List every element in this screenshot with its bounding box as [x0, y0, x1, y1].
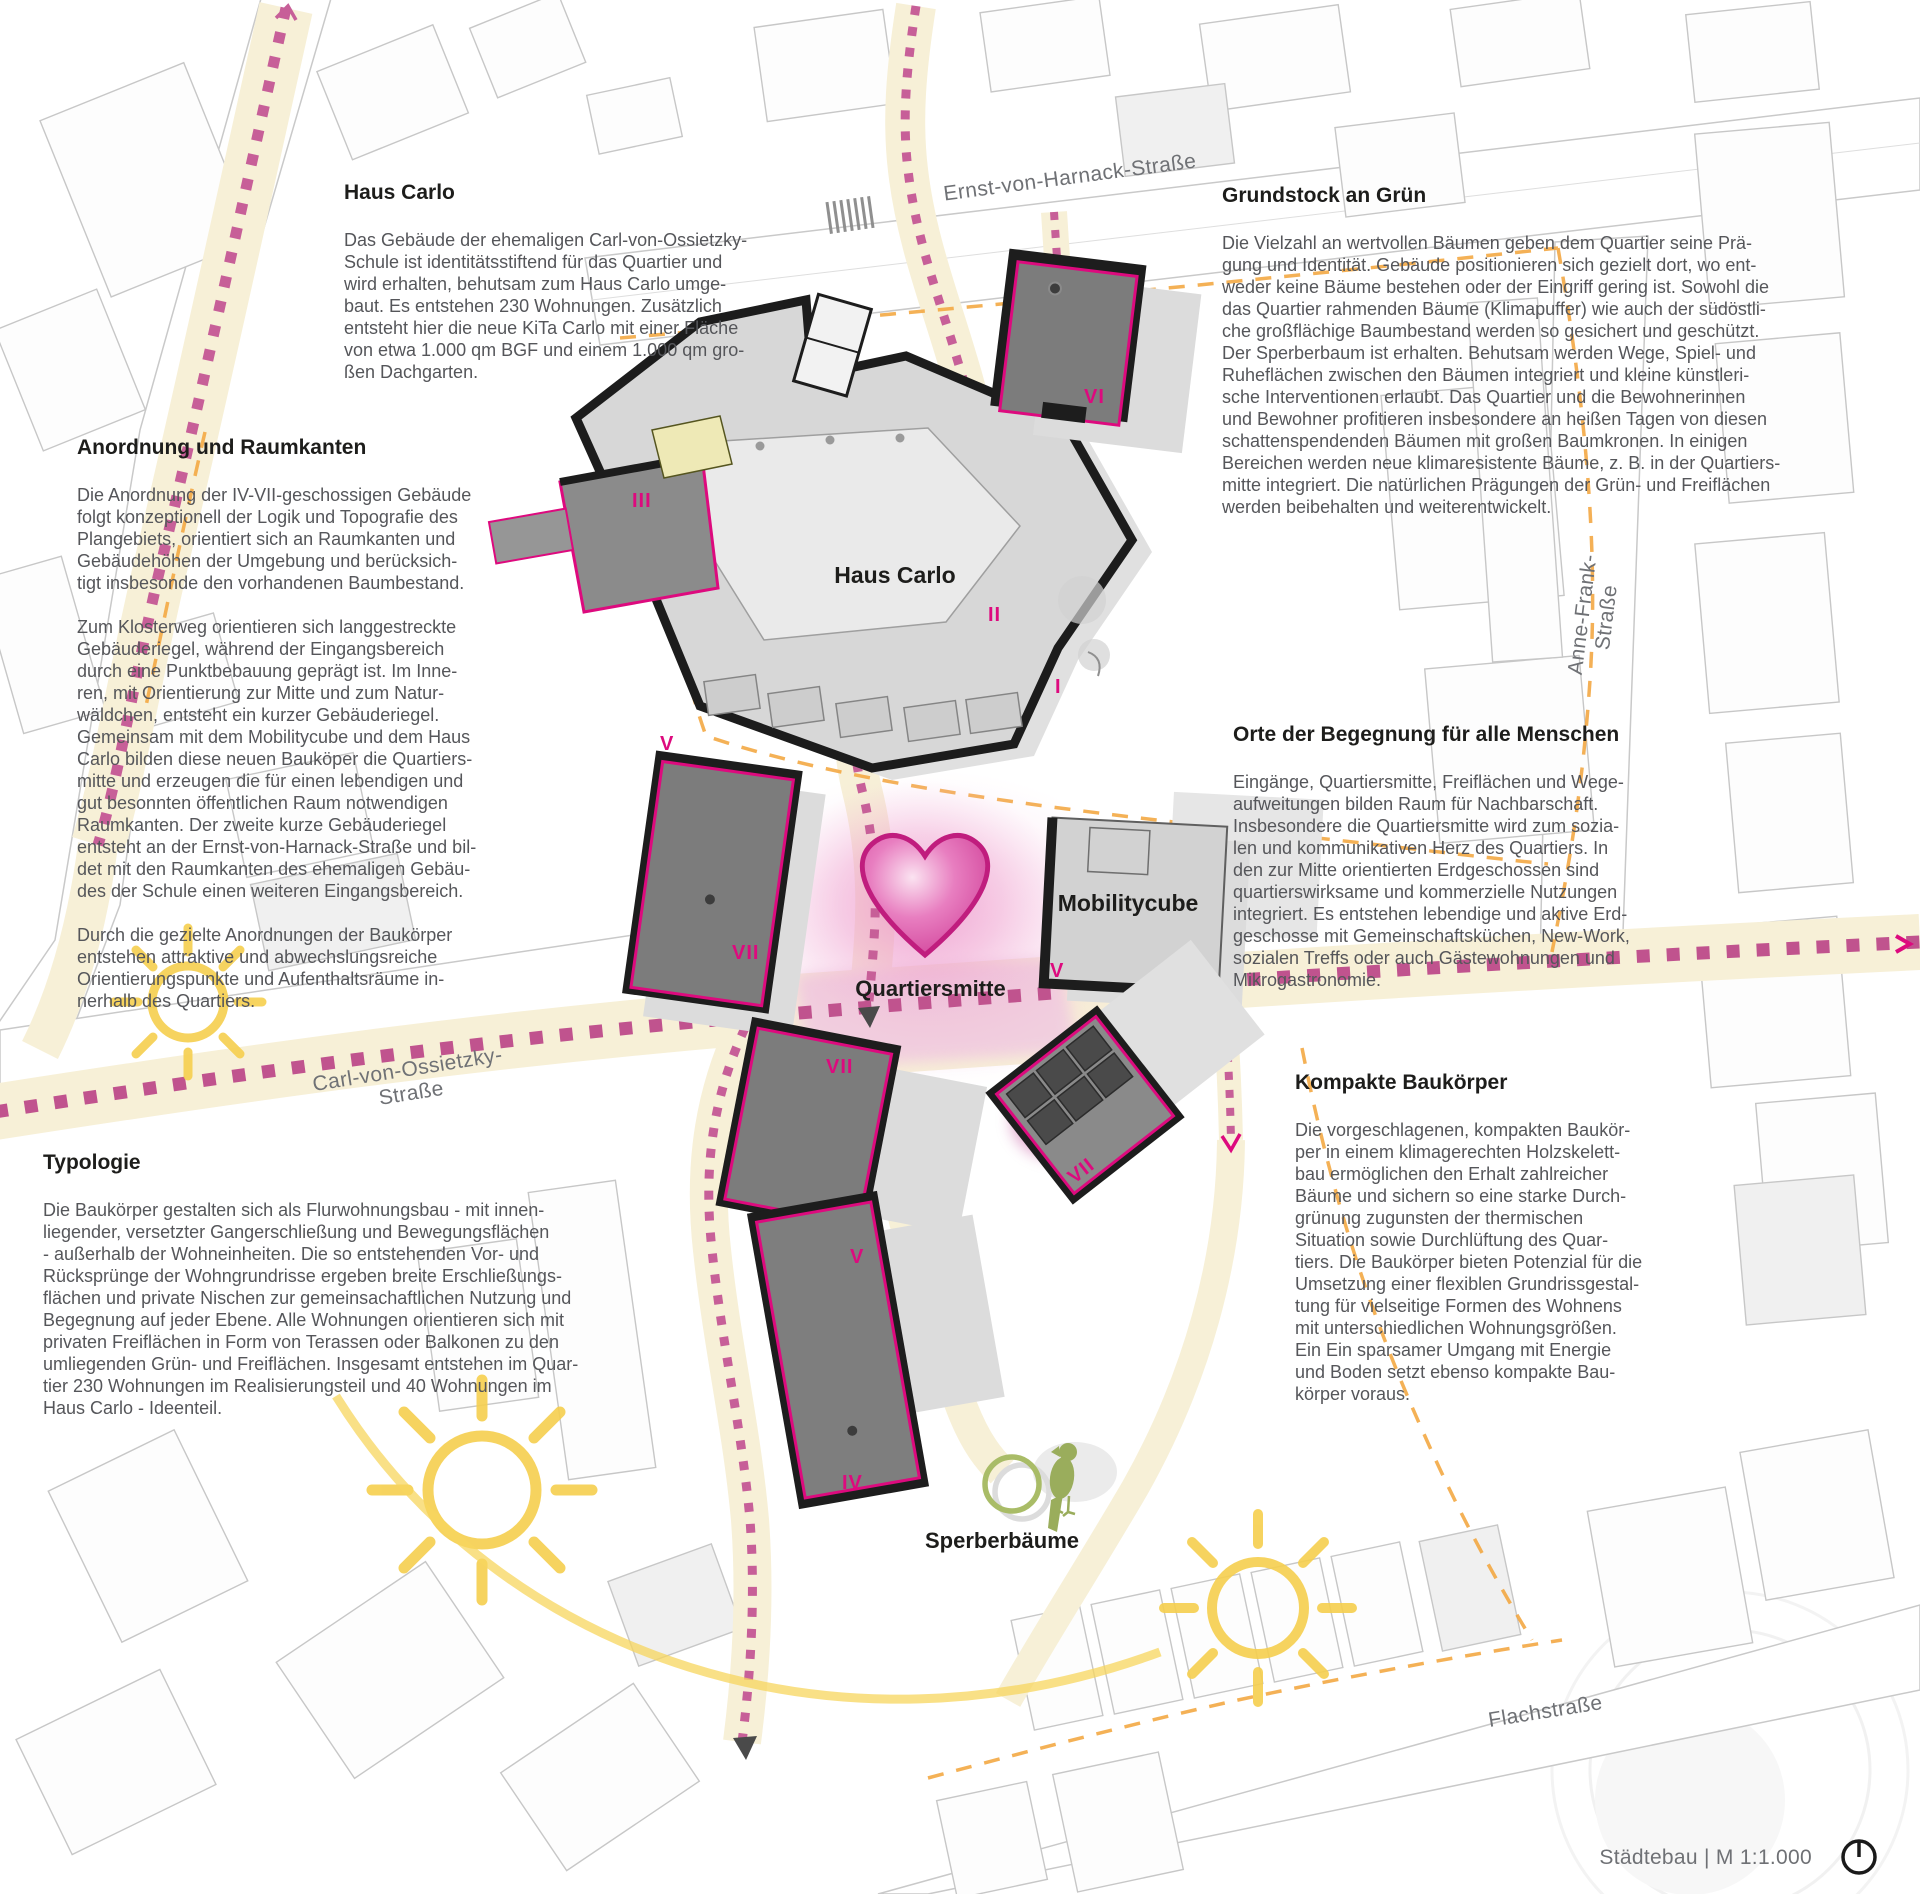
annotation-grundstock: Grundstock an Grün Die Vielzahl an wertv… — [1222, 161, 1842, 540]
label-mobilitycube: Mobilitycube — [1038, 890, 1218, 917]
scale-label: Städtebau | M 1:1.000 — [1556, 1846, 1812, 1870]
north-arrow-icon — [1843, 1841, 1875, 1873]
annotation-haus-carlo: Haus Carlo Das Gebäude der ehemaligen Ca… — [344, 158, 814, 405]
annotation-anordnung: Anordnung und Raumkanten Die Anordnung d… — [77, 413, 517, 1034]
annotation-body: Die vorgeschlagenen, kompakten Baukör- p… — [1295, 1119, 1695, 1405]
annotation-body: Die Vielzahl an wertvollen Bäumen geben … — [1222, 232, 1842, 518]
building-v-vii — [619, 751, 828, 1038]
annotation-body: Die Baukörper gestalten sich als Flurwoh… — [43, 1199, 663, 1419]
storey-numeral: I — [1055, 676, 1062, 699]
annotation-body: Eingänge, Quartiersmitte, Freiflächen un… — [1233, 771, 1693, 991]
storey-numeral: III — [632, 490, 652, 513]
annotation-body: Die Anordnung der IV-VII-geschossigen Ge… — [77, 484, 517, 1012]
storey-numeral: V — [660, 733, 674, 756]
annotation-kompakte: Kompakte Baukörper Die vorgeschlagenen, … — [1295, 1048, 1695, 1427]
storey-numeral: VII — [732, 942, 759, 965]
label-quartiersmitte: Quartiersmitte — [838, 976, 1023, 1002]
annotation-title: Grundstock an Grün — [1222, 183, 1842, 209]
label-sperberbaeume: Sperberbäume — [912, 1528, 1092, 1554]
storey-numeral: V — [850, 1246, 864, 1269]
annotation-body: Das Gebäude der ehemaligen Carl-von-Ossi… — [344, 229, 814, 383]
storey-numeral: IV — [842, 1472, 863, 1495]
storey-numeral: V — [1050, 960, 1064, 983]
annotation-title: Typologie — [43, 1150, 663, 1176]
label-haus-carlo: Haus Carlo — [820, 562, 970, 589]
urban-design-plan: Haus Carlo Das Gebäude der ehemaligen Ca… — [0, 0, 1920, 1894]
sperberbaeume-marker — [985, 1442, 1117, 1532]
annotation-title: Orte der Begegnung für alle Menschen — [1233, 722, 1693, 748]
annotation-title: Haus Carlo — [344, 180, 814, 206]
storey-numeral: II — [988, 604, 1001, 627]
storey-numeral: VII — [826, 1056, 853, 1079]
annotation-title: Kompakte Baukörper — [1295, 1070, 1695, 1096]
annotation-typologie: Typologie Die Baukörper gestalten sich a… — [43, 1128, 663, 1441]
storey-numeral: VI — [1084, 386, 1105, 409]
annotation-title: Anordnung und Raumkanten — [77, 435, 517, 461]
annotation-orte: Orte der Begegnung für alle Menschen Ein… — [1233, 700, 1693, 1013]
